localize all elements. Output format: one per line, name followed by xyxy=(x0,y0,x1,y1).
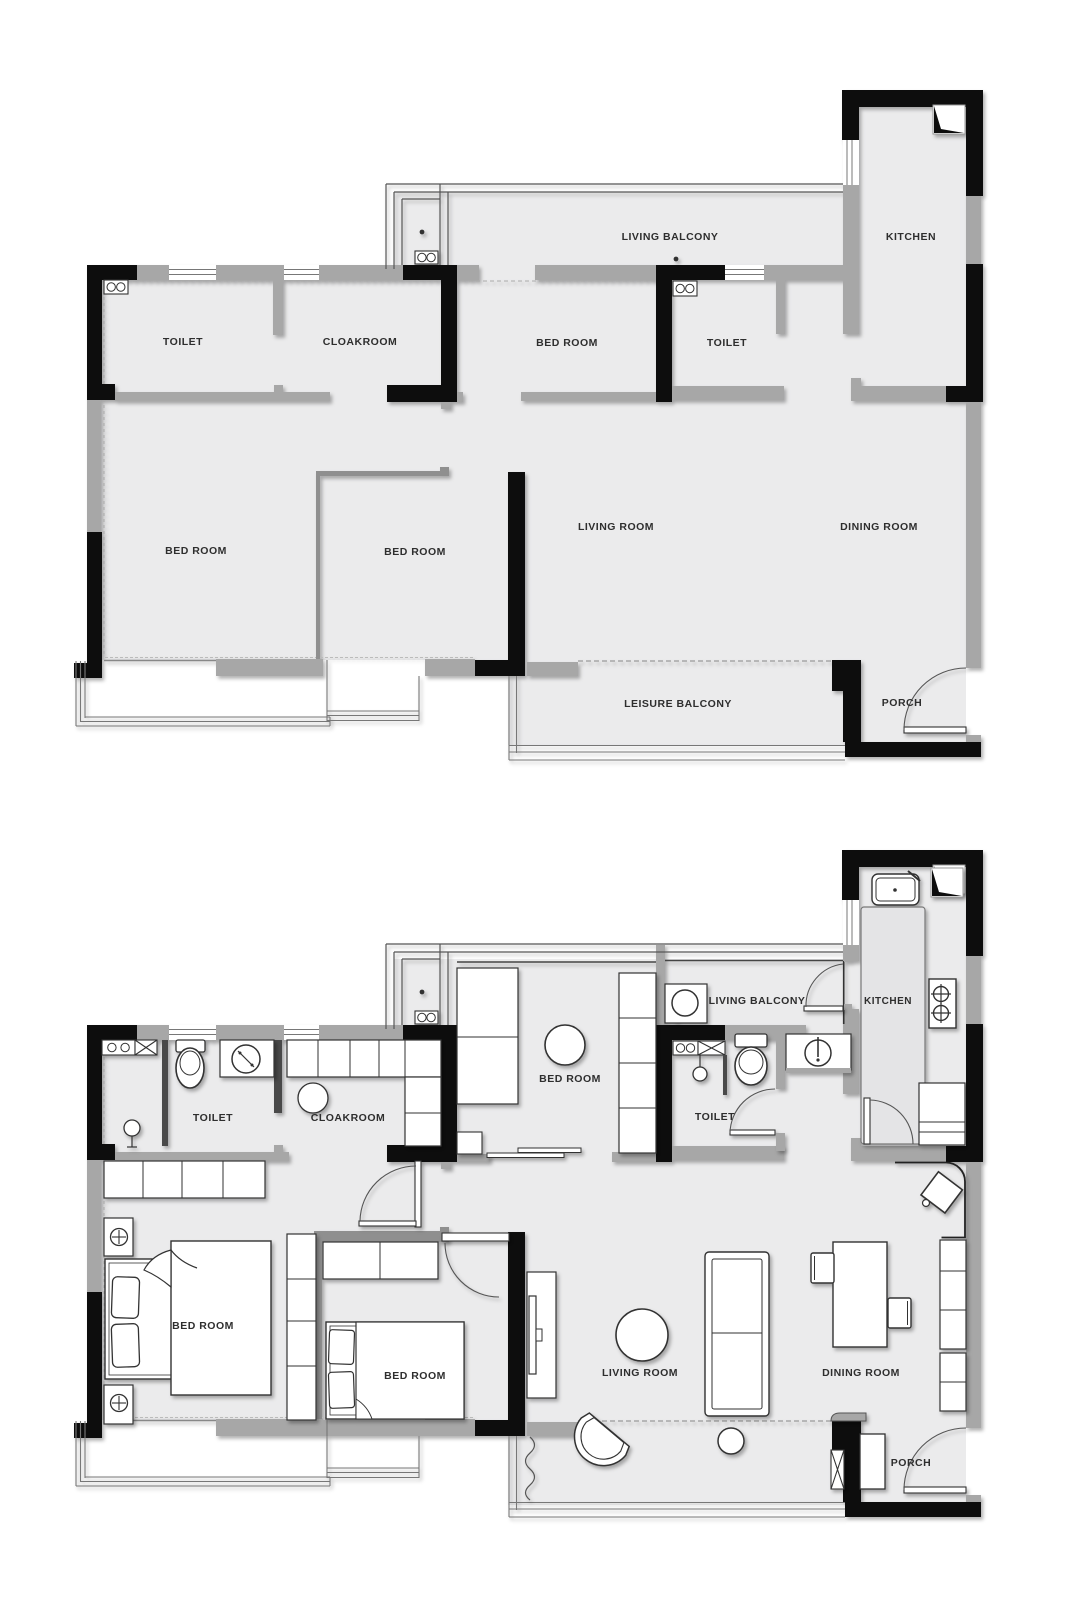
svg-text:DINING ROOM: DINING ROOM xyxy=(840,521,918,533)
svg-text:LIVING ROOM: LIVING ROOM xyxy=(578,521,654,533)
svg-text:BED ROOM: BED ROOM xyxy=(165,545,227,557)
svg-text:TOILET: TOILET xyxy=(193,1112,233,1124)
svg-text:TOILET: TOILET xyxy=(707,337,747,349)
svg-text:BED ROOM: BED ROOM xyxy=(172,1320,234,1332)
svg-text:BED ROOM: BED ROOM xyxy=(536,337,598,349)
svg-text:LIVING BALCONY: LIVING BALCONY xyxy=(709,995,806,1007)
svg-text:TOILET: TOILET xyxy=(695,1111,735,1123)
svg-text:BED ROOM: BED ROOM xyxy=(384,546,446,558)
svg-text:LIVING BALCONY: LIVING BALCONY xyxy=(622,231,719,243)
svg-text:CLOAKROOM: CLOAKROOM xyxy=(323,336,398,348)
svg-text:LEISURE BALCONY: LEISURE BALCONY xyxy=(624,698,732,710)
svg-text:KITCHEN: KITCHEN xyxy=(886,231,936,243)
svg-text:TOILET: TOILET xyxy=(163,336,203,348)
svg-text:KITCHEN: KITCHEN xyxy=(864,996,912,1007)
svg-text:LIVING ROOM: LIVING ROOM xyxy=(602,1367,678,1379)
svg-text:BED ROOM: BED ROOM xyxy=(539,1073,601,1085)
svg-text:PORCH: PORCH xyxy=(891,1457,931,1469)
svg-text:CLOAKROOM: CLOAKROOM xyxy=(311,1112,386,1124)
svg-text:DINING ROOM: DINING ROOM xyxy=(822,1367,900,1379)
svg-text:PORCH: PORCH xyxy=(882,697,922,709)
svg-text:BED ROOM: BED ROOM xyxy=(384,1370,446,1382)
